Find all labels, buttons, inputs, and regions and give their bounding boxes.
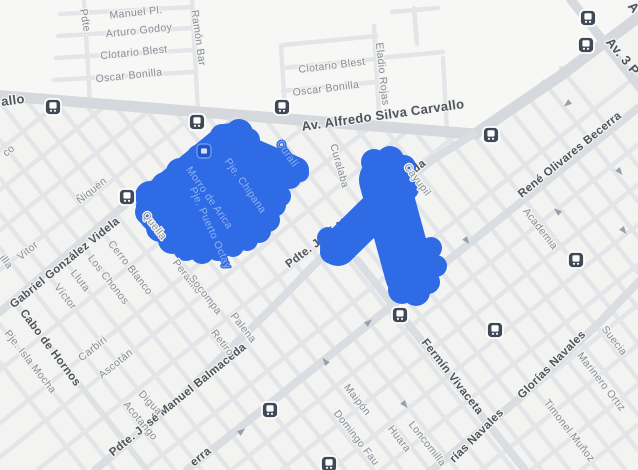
bus-stop-icon[interactable]: [119, 189, 135, 205]
bus-stop-icon[interactable]: [262, 402, 278, 418]
bus-stop-icon[interactable]: [321, 456, 337, 470]
highlight-scallop[interactable]: [317, 227, 339, 249]
bus-stop-icon[interactable]: [45, 99, 61, 115]
bus-stop-icon[interactable]: [487, 322, 503, 338]
highlight-scallop[interactable]: [420, 237, 442, 259]
highlight-scallop[interactable]: [236, 128, 260, 152]
bus-stop-icon[interactable]: [274, 99, 290, 115]
bus-stop-icon[interactable]: [189, 114, 205, 130]
bus-stop-icon[interactable]: [580, 10, 596, 26]
bus-stop-icon[interactable]: [578, 37, 594, 53]
map-svg[interactable]: Pdte. José Manuel BalmacedaCuralaba Av. …: [0, 0, 638, 470]
place-icon[interactable]: [197, 144, 211, 158]
bus-stop-icon[interactable]: [483, 127, 499, 143]
street: [414, 8, 417, 44]
bus-stop-icon[interactable]: [568, 252, 584, 268]
map-canvas[interactable]: Pdte. José Manuel BalmacedaCuralaba Av. …: [0, 0, 638, 470]
bus-stop-icon[interactable]: [392, 307, 408, 323]
highlight-scallop[interactable]: [151, 172, 179, 200]
